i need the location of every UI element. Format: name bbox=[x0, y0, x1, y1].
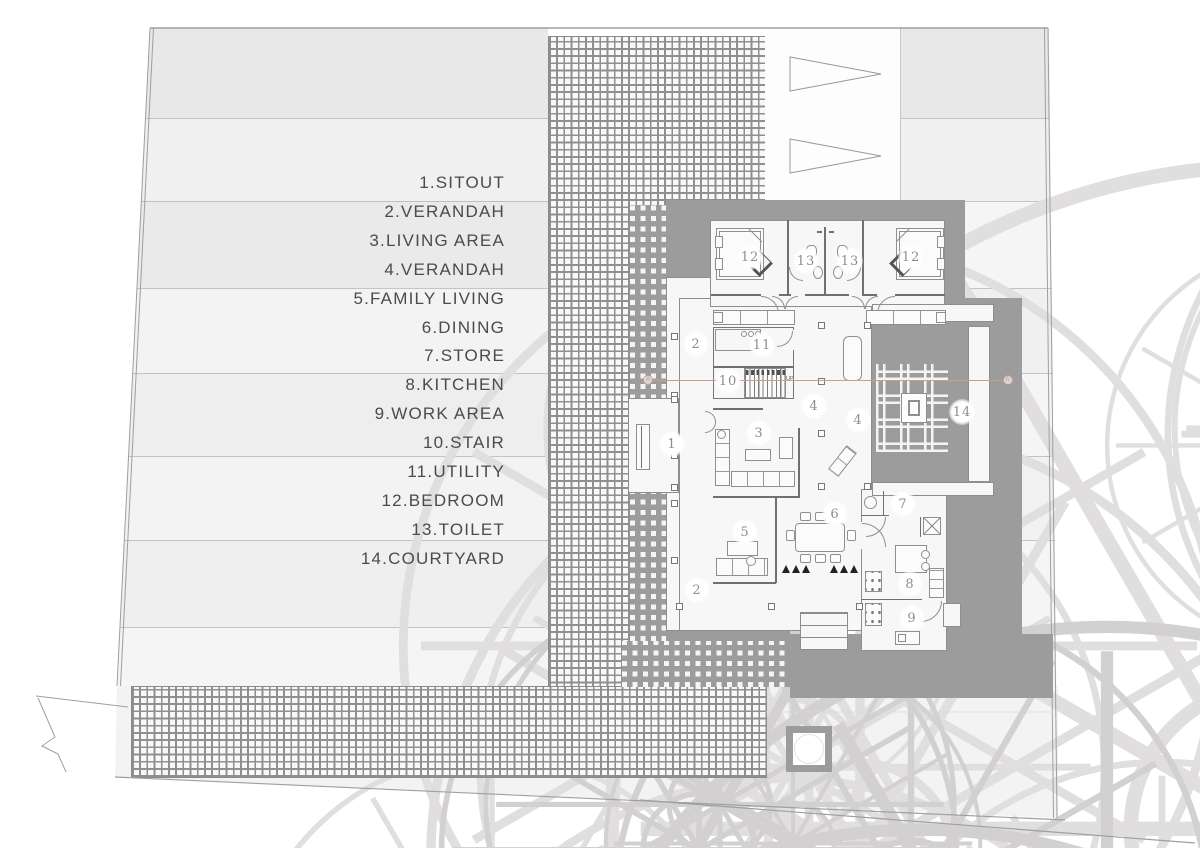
legend-item: 6.DINING bbox=[160, 314, 505, 343]
boundary-bottom bbox=[115, 777, 1065, 820]
site-plan-canvas: UP A bbox=[0, 0, 1200, 848]
legend-item: 7.STORE bbox=[160, 342, 505, 371]
legend-item: 13.TOILET bbox=[160, 516, 505, 545]
legend-item: 12.BEDROOM bbox=[160, 487, 505, 516]
boundary-bottom-outer bbox=[640, 800, 1195, 843]
legend-item: 11.UTILITY bbox=[160, 458, 505, 487]
legend-item: 5.FAMILY LIVING bbox=[160, 285, 505, 314]
legend-item: 14.COURTYARD bbox=[160, 545, 505, 574]
boundary-left bbox=[117, 28, 150, 686]
legend-item: 9.WORK AREA bbox=[160, 400, 505, 429]
legend-item: 2.VERANDAH bbox=[160, 198, 505, 227]
legend-item: 3.LIVING AREA bbox=[160, 227, 505, 256]
break-mark bbox=[38, 698, 66, 772]
legend-item: 1.SITOUT bbox=[160, 169, 505, 198]
legend-item: 4.VERANDAH bbox=[160, 256, 505, 285]
boundary-bottom-stub bbox=[36, 696, 128, 707]
boundary-left-inner bbox=[121, 28, 154, 686]
legend-item: 8.KITCHEN bbox=[160, 371, 505, 400]
legend-item: 10.STAIR bbox=[160, 429, 505, 458]
legend: 1.SITOUT 2.VERANDAH 3.LIVING AREA 4.VERA… bbox=[160, 169, 505, 574]
